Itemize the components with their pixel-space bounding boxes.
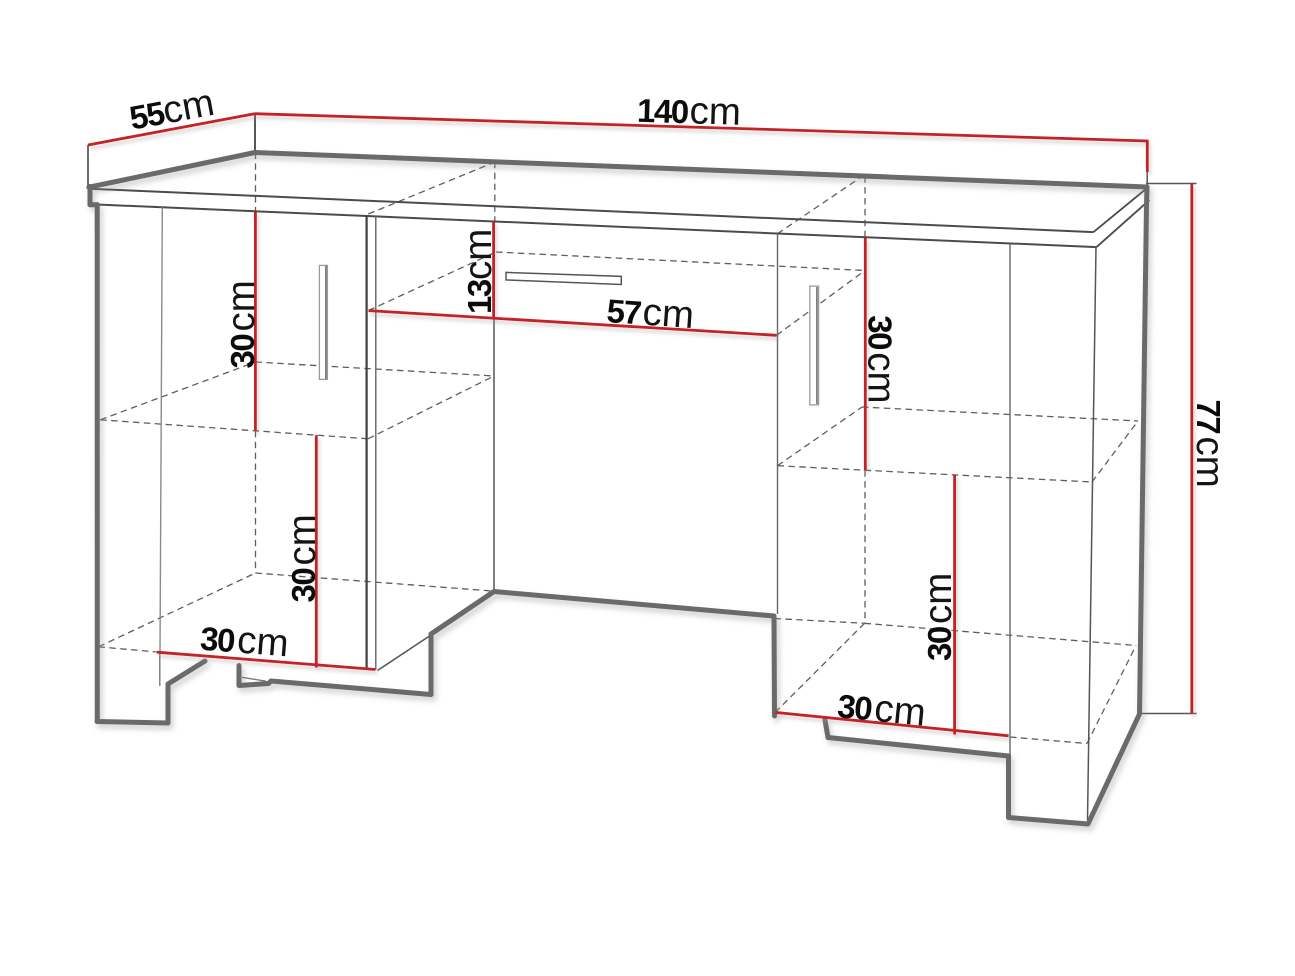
svg-text:77: 77 <box>1190 400 1227 434</box>
svg-text:cm: cm <box>917 573 960 624</box>
svg-text:30: 30 <box>224 335 261 369</box>
svg-text:30: 30 <box>199 620 236 660</box>
svg-text:30: 30 <box>836 687 873 727</box>
svg-text:cm: cm <box>1188 437 1231 488</box>
svg-text:57: 57 <box>606 292 642 331</box>
svg-text:30: 30 <box>862 315 899 349</box>
svg-text:13: 13 <box>461 279 498 314</box>
svg-text:cm: cm <box>220 280 263 331</box>
svg-text:cm: cm <box>236 619 291 666</box>
svg-text:cm: cm <box>159 81 217 133</box>
svg-text:cm: cm <box>457 229 500 280</box>
svg-text:cm: cm <box>872 687 927 735</box>
svg-text:30: 30 <box>285 569 322 603</box>
svg-text:cm: cm <box>860 352 903 403</box>
svg-text:cm: cm <box>689 89 742 134</box>
svg-text:30: 30 <box>921 627 958 661</box>
svg-text:cm: cm <box>281 514 324 565</box>
svg-text:140: 140 <box>637 92 689 130</box>
svg-text:cm: cm <box>641 291 695 337</box>
